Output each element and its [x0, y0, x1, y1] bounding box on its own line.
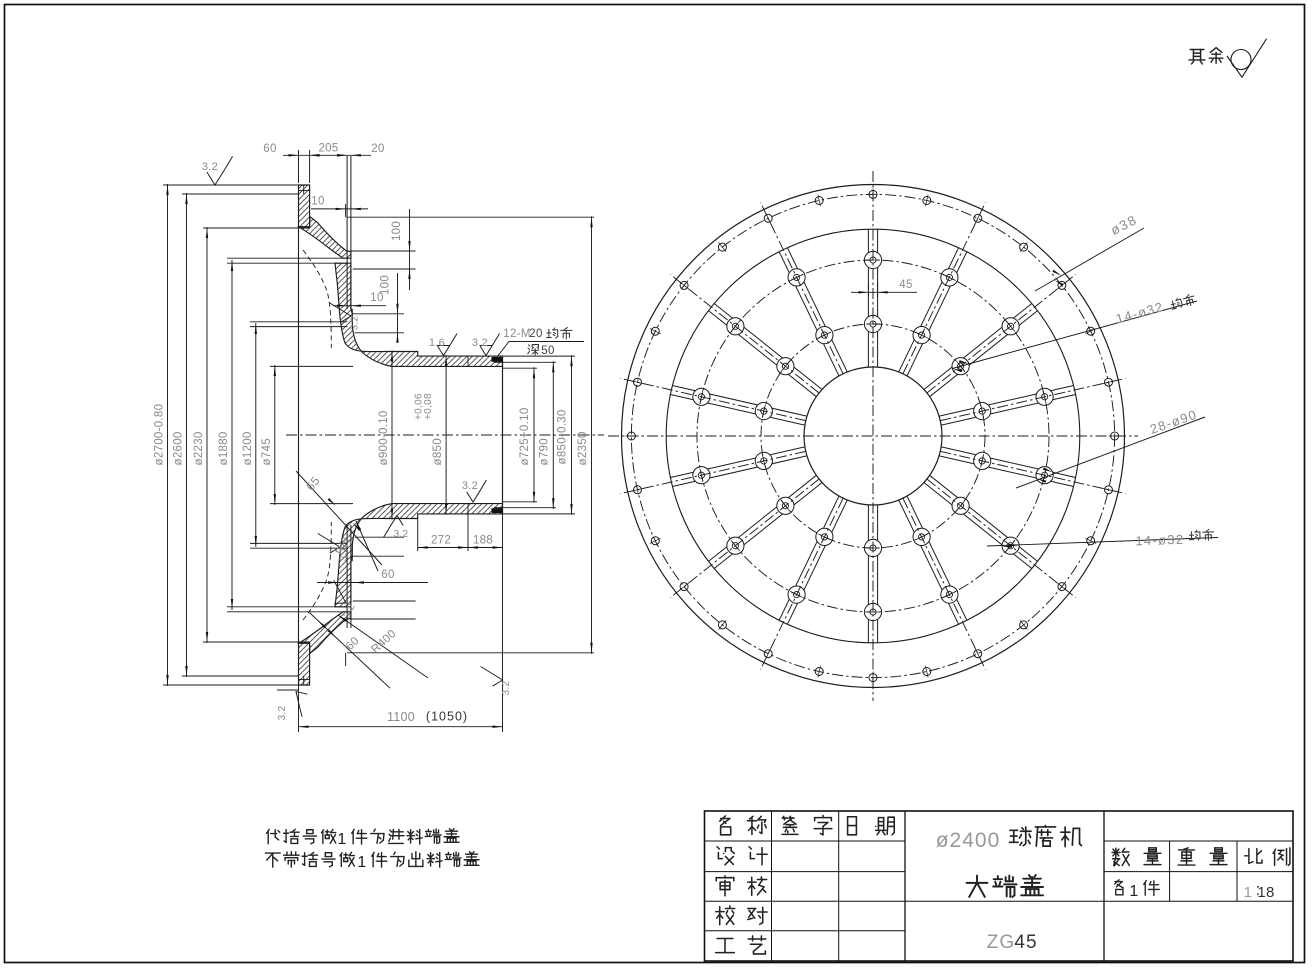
svg-text:ø2700-0.80: ø2700-0.80 — [154, 404, 166, 466]
svg-text:3.2: 3.2 — [277, 705, 288, 720]
svg-text:1: 1 — [1129, 883, 1138, 900]
svg-text:20: 20 — [371, 143, 384, 155]
svg-text:60: 60 — [381, 569, 394, 581]
svg-text:1: 1 — [1244, 884, 1253, 901]
svg-text:60: 60 — [263, 143, 276, 155]
svg-text:1: 1 — [337, 831, 346, 848]
svg-text:272: 272 — [431, 535, 451, 547]
svg-text:45: 45 — [1014, 932, 1037, 953]
svg-text:3.2: 3.2 — [462, 480, 478, 492]
svg-text:3.2: 3.2 — [472, 337, 488, 349]
svg-text:45: 45 — [899, 279, 912, 291]
svg-text:12-M: 12-M — [503, 328, 530, 340]
svg-text:ZG: ZG — [987, 932, 1015, 953]
svg-text:3.2: 3.2 — [202, 161, 218, 173]
svg-text:1.6: 1.6 — [429, 337, 445, 349]
svg-text:1100: 1100 — [387, 710, 415, 724]
svg-text:ø2400: ø2400 — [936, 829, 1001, 852]
svg-text:100: 100 — [391, 221, 403, 241]
svg-text:(1050): (1050) — [426, 710, 468, 724]
svg-text:50: 50 — [541, 345, 554, 357]
svg-text:ø790: ø790 — [538, 438, 550, 465]
svg-text:18: 18 — [1257, 884, 1274, 901]
svg-text:ø725+0.10: ø725+0.10 — [519, 407, 531, 465]
svg-text:ø1200: ø1200 — [242, 431, 254, 465]
svg-text:14-ø32: 14-ø32 — [1135, 532, 1184, 549]
svg-text:ø1880: ø1880 — [218, 431, 230, 465]
svg-text:1: 1 — [357, 854, 366, 871]
svg-text:ø745: ø745 — [261, 438, 273, 465]
svg-text:ø850: ø850 — [432, 438, 444, 465]
svg-text:3.2: 3.2 — [501, 680, 512, 695]
svg-text:ø2230: ø2230 — [193, 431, 205, 465]
svg-text:3.2: 3.2 — [394, 529, 409, 540]
svg-text:10: 10 — [311, 196, 324, 208]
svg-text:188: 188 — [473, 535, 493, 547]
svg-text:ø2350: ø2350 — [577, 431, 589, 465]
svg-text:100: 100 — [380, 275, 392, 295]
svg-text:ø850-0.30: ø850-0.30 — [557, 409, 569, 464]
svg-text:ø2600: ø2600 — [173, 431, 185, 465]
svg-text:205: 205 — [318, 143, 338, 155]
svg-text:3.2: 3.2 — [350, 315, 361, 330]
svg-text:+0,08: +0,08 — [423, 393, 434, 420]
svg-text:20: 20 — [529, 328, 542, 340]
svg-text:ø900-0.10: ø900-0.10 — [378, 410, 390, 465]
